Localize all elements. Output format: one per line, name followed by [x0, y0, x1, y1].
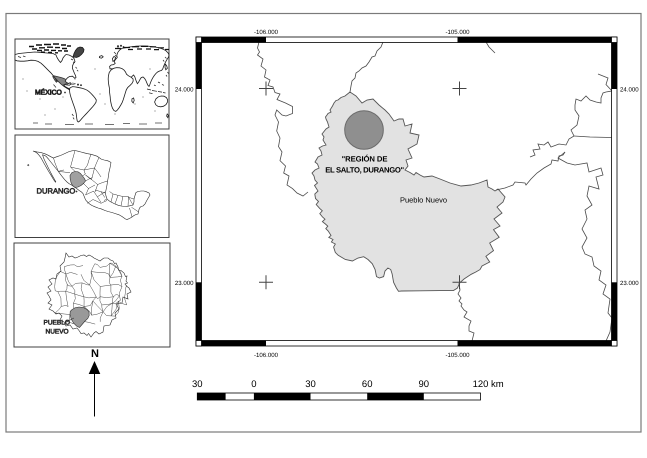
svg-text:24.000: 24.000 — [175, 87, 194, 94]
svg-text:-106.000: -106.000 — [254, 29, 279, 36]
svg-text:km: km — [491, 379, 504, 390]
svg-text:Pueblo Nuevo: Pueblo Nuevo — [400, 196, 447, 205]
svg-text:30: 30 — [192, 379, 203, 390]
svg-text:23.000: 23.000 — [175, 280, 194, 287]
svg-text:PUEBLO: PUEBLO — [44, 320, 70, 327]
svg-text:23.000: 23.000 — [620, 280, 639, 287]
svg-text:-105.000: -105.000 — [445, 29, 470, 36]
svg-text:NUEVO: NUEVO — [46, 329, 69, 336]
svg-text:90: 90 — [419, 379, 430, 390]
svg-text:0: 0 — [251, 379, 256, 390]
svg-text:DURANGO: DURANGO — [37, 187, 76, 196]
svg-text:-105.000: -105.000 — [445, 352, 470, 359]
svg-text:EL SALTO, DURANGO": EL SALTO, DURANGO" — [325, 166, 404, 175]
svg-text:120: 120 — [473, 379, 489, 390]
svg-text:N: N — [91, 348, 99, 360]
svg-text:60: 60 — [362, 379, 373, 390]
svg-text:"REGIÓN DE: "REGIÓN DE — [342, 155, 388, 164]
svg-text:24.000: 24.000 — [620, 87, 639, 94]
svg-text:30: 30 — [305, 379, 316, 390]
svg-text:MÉXICO: MÉXICO — [35, 89, 62, 97]
svg-text:-106.000: -106.000 — [254, 352, 279, 359]
